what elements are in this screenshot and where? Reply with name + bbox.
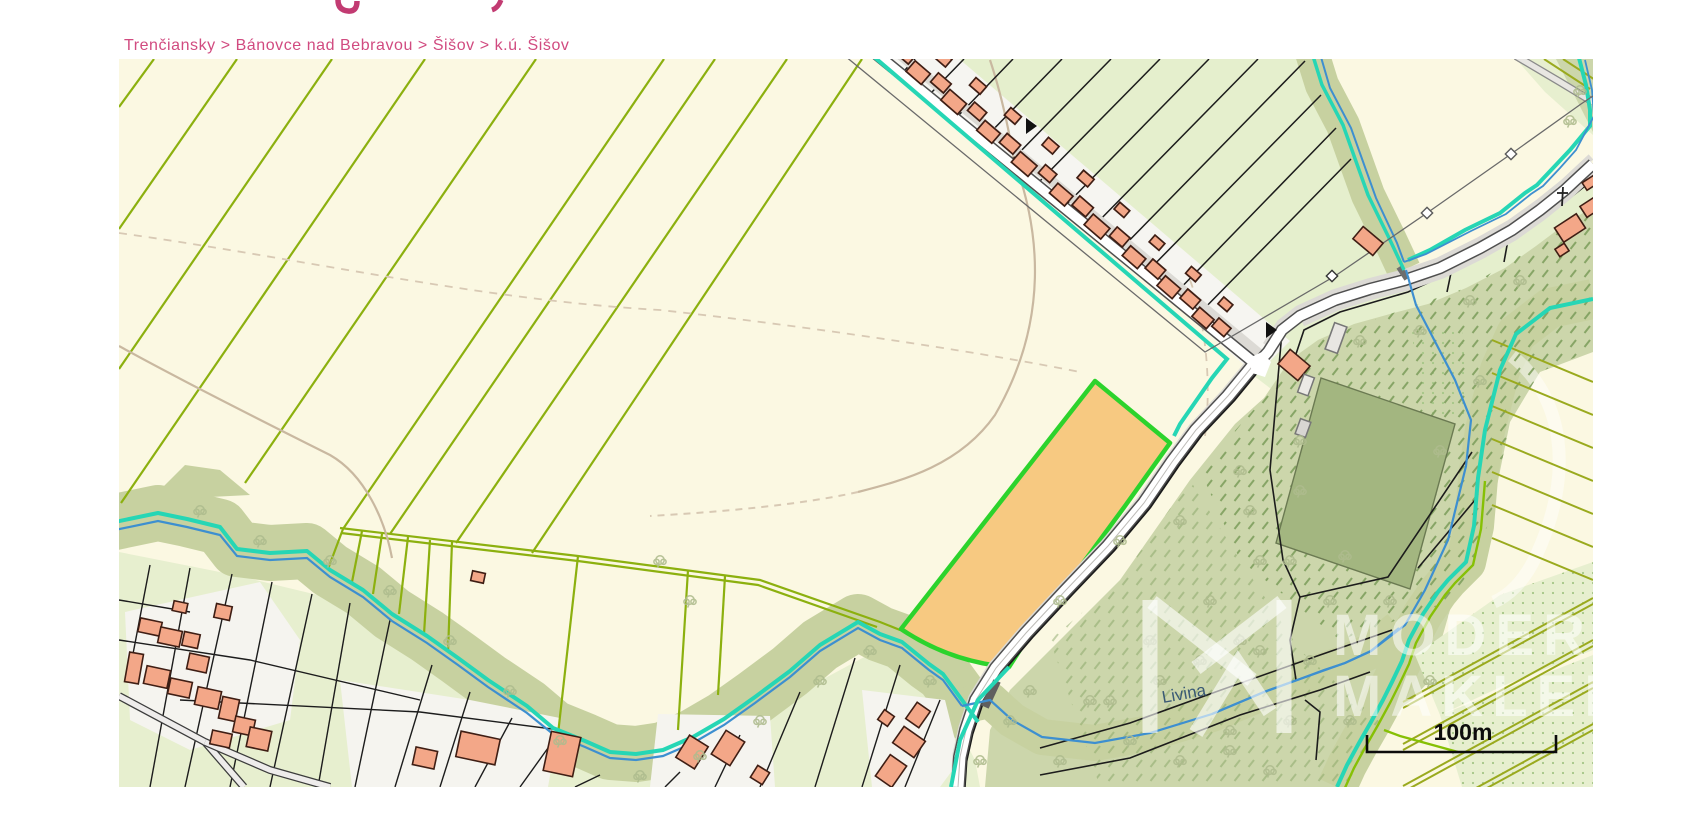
svg-text:100m: 100m xyxy=(1434,719,1493,745)
svg-text:MODERN: MODERN xyxy=(1333,603,1645,668)
